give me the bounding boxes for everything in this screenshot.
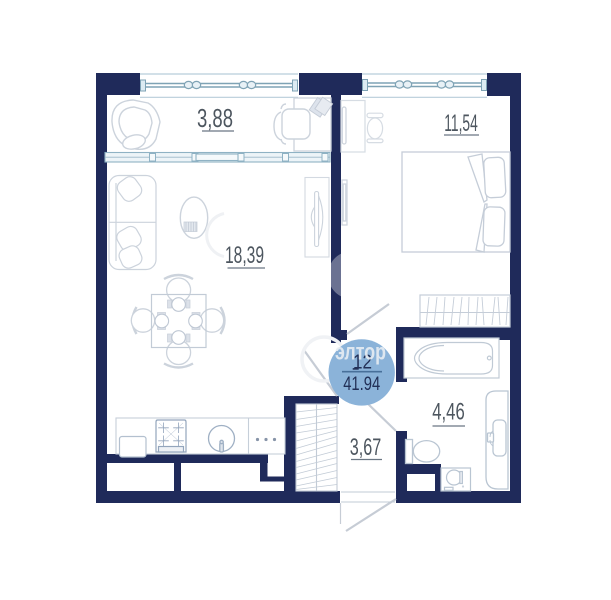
svg-text:11,54: 11,54 (444, 110, 478, 137)
svg-text:3,88: 3,88 (197, 103, 233, 133)
svg-text:3,67: 3,67 (350, 434, 382, 461)
svg-text:элтор: элтор (335, 339, 386, 365)
svg-text:41.94: 41.94 (343, 373, 380, 395)
svg-text:4,46: 4,46 (432, 399, 465, 426)
svg-text:18,39: 18,39 (225, 242, 264, 269)
